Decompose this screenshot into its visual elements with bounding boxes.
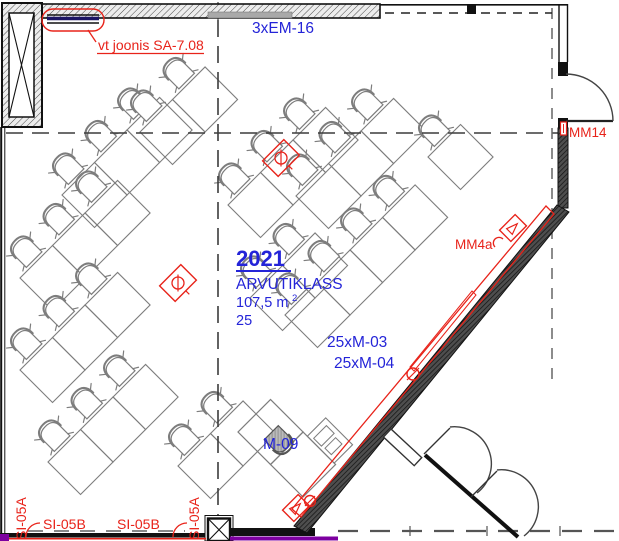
- room-name: ARVUTIKLASS: [236, 276, 343, 293]
- label-si05b-2: SI-05B: [117, 516, 160, 532]
- label-monitors-2: 25xM-04: [334, 355, 395, 372]
- column-marker: [467, 4, 476, 14]
- floor-plan-canvas: 3xEM-16 vt joonis SA-7.08 2021 ARVUTIKLA…: [0, 0, 619, 541]
- desk-row: [27, 343, 178, 494]
- label-mm14: MM14: [569, 125, 607, 140]
- north-wall: [28, 4, 380, 18]
- desk-row: [207, 86, 358, 237]
- south-wall-left: [0, 533, 210, 538]
- student-desk-rows: [0, 46, 493, 499]
- label-mm4a: MM4a: [455, 237, 493, 252]
- desk-row: [407, 103, 493, 189]
- room-capacity: 25: [236, 313, 252, 329]
- shaft-column: [2, 3, 42, 127]
- south-column: [205, 516, 233, 541]
- room-area-exponent: 2: [292, 293, 297, 304]
- floor-plan-drawing: 3xEM-16 vt joonis SA-7.08 2021 ARVUTIKLA…: [0, 0, 619, 541]
- label-em16: 3xEM-16: [252, 20, 314, 37]
- beam-band: [208, 12, 292, 18]
- desk-row: [157, 380, 276, 499]
- mm4a-device-icon: [500, 215, 527, 242]
- double-door-bottom-right: [383, 427, 538, 537]
- label-beam-note: vt joonis SA-7.08: [98, 37, 204, 53]
- label-monitors-1: 25xM-03: [327, 334, 387, 351]
- desk-row: [119, 46, 238, 165]
- east-wall-lower: [558, 128, 568, 208]
- floor-outlet-icon: [160, 265, 200, 305]
- room-area: 107,5 m: [236, 295, 288, 311]
- mm4a-arc: [493, 237, 503, 247]
- desk-row: [41, 76, 192, 227]
- label-teacher-unit: M-09: [263, 436, 298, 453]
- room-number: 2021: [236, 246, 285, 271]
- label-si05a-left: SI-05A: [13, 497, 29, 540]
- label-si05a-mid: SI-05A: [186, 497, 202, 540]
- desk-row: [0, 251, 150, 402]
- label-si05b-1: SI-05B: [43, 516, 86, 532]
- mm14-device-icon: [561, 122, 567, 135]
- door-top-right: [566, 74, 613, 121]
